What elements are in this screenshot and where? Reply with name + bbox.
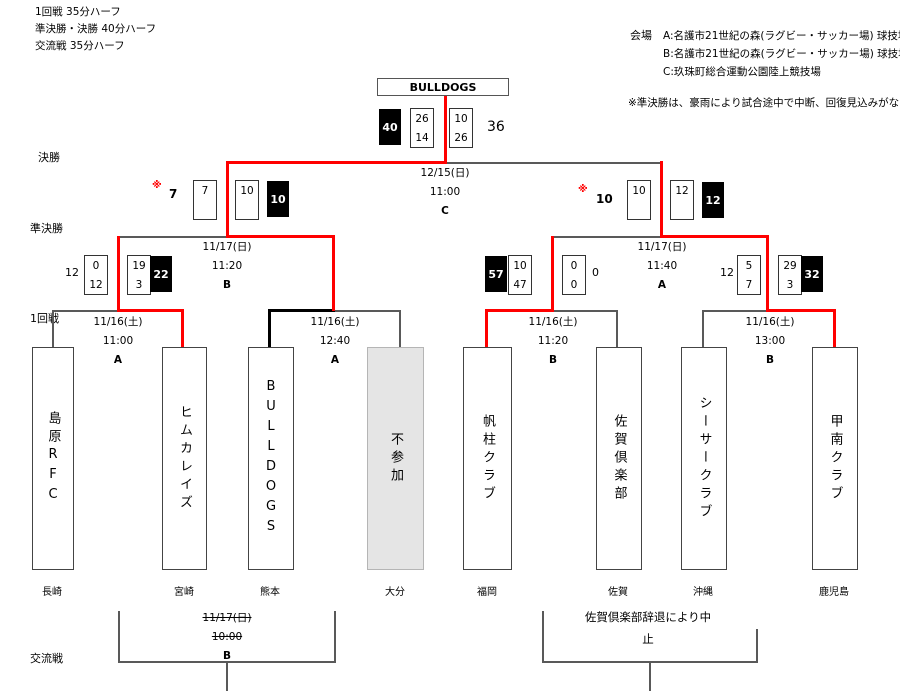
- m3-loser-halves-box: 0 0: [562, 255, 586, 295]
- venue-a: A:名護市21世紀の森(ラグビー・サッカー場) 球技場: [663, 27, 900, 45]
- team-name: BULLDOGS: [265, 379, 278, 539]
- m4-winner-half2: 3: [779, 275, 801, 294]
- m4-venue: B: [725, 351, 815, 370]
- m1-loser-total: 12: [65, 266, 79, 279]
- exchange-left-bracket-left-vertical: [118, 611, 120, 663]
- exchange-left-date: 11/17(日): [182, 609, 272, 628]
- m3-venue: B: [508, 351, 598, 370]
- m4-schedule: 11/16(土) 13:00 B: [725, 313, 815, 370]
- team-name: 甲南クラブ: [829, 414, 842, 504]
- sfR-winner-half1: 12: [671, 181, 693, 200]
- m4-loser-halves-box: 5 7: [737, 255, 761, 295]
- sfL-rain-mark: ※: [152, 180, 162, 191]
- match-duration-rules: 1回戦 35分ハーフ 準決勝・決勝 40分ハーフ 交流戦 35分ハーフ: [35, 4, 156, 55]
- sfR-venue: A: [617, 276, 707, 295]
- m4-date: 11/16(土): [725, 313, 815, 332]
- m3-winner-halves-box: 10 47: [508, 255, 532, 295]
- sfL-loser-total: 7: [169, 187, 177, 201]
- bracket-line-m3-horizontal: [553, 310, 618, 312]
- final-venue: C: [400, 202, 490, 221]
- bracket-line-m1-left-vertical: [52, 310, 54, 347]
- sfL-loser-half1: 7: [194, 181, 216, 200]
- m1-time: 11:00: [73, 332, 163, 351]
- pref-oita: 大分: [360, 583, 430, 598]
- m3-loser-total: 0: [592, 266, 599, 279]
- exchange-right-bracket-stub: [649, 662, 651, 691]
- m1-loser-half1: 0: [85, 256, 107, 275]
- m4-winner-half1: 29: [779, 256, 801, 275]
- bracket-line-m2-horizontal: [334, 310, 401, 312]
- m1-schedule: 11/16(土) 11:00 A: [73, 313, 163, 370]
- sfL-winner-half2: [236, 200, 258, 219]
- exchange-left-bracket-right-vertical: [334, 611, 336, 663]
- rule-first-round: 1回戦 35分ハーフ: [35, 4, 156, 21]
- m3-winner-total-box: 57: [485, 256, 507, 292]
- walkover-path-m2-horizontal: [268, 309, 335, 312]
- winner-path-m4-to-sfR: [766, 235, 769, 311]
- exchange-left-time: 10:00: [182, 628, 272, 647]
- exchange-right-bracket-right-vertical: [756, 629, 758, 663]
- winner-path-m4-horizontal: [766, 309, 836, 312]
- sfR-loser-halves-box: 10: [627, 180, 651, 220]
- team-box-hobashira-club: 帆柱クラブ: [463, 347, 512, 570]
- sfR-winner-halves-box: 12: [670, 180, 694, 220]
- sfL-loser-halves-box: 7: [193, 180, 217, 220]
- rule-semifinal-final: 準決勝・決勝 40分ハーフ: [35, 21, 156, 38]
- m1-winner-total-box: 22: [150, 256, 172, 292]
- final-loser-total: 36: [487, 119, 505, 135]
- sfL-schedule: 11/17(日) 11:20 B: [182, 238, 272, 295]
- team-name: ヒムカレイズ: [178, 405, 191, 513]
- final-winner-total-box: 40: [379, 109, 401, 145]
- exchange-left-bracket-stub: [226, 662, 228, 691]
- exchange-right-cancel-note: 佐賀倶楽部辞退により中 止: [543, 606, 753, 650]
- cancel-note-line2: 止: [543, 628, 753, 650]
- sfR-schedule: 11/17(日) 11:40 A: [617, 238, 707, 295]
- sfR-winner-total-box: 12: [702, 182, 724, 218]
- bracket-line-m4-horizontal: [702, 310, 768, 312]
- bracket-line-m1-horizontal: [52, 310, 118, 312]
- round-label-semifinal: 準決勝: [30, 220, 63, 236]
- sfL-date: 11/17(日): [182, 238, 272, 257]
- team-box-shimabara-rfc: 島原RFC: [32, 347, 74, 570]
- exchange-left-schedule: 11/17(日) 10:00 B: [182, 609, 272, 666]
- m4-loser-total: 12: [720, 266, 734, 279]
- final-schedule: 12/15(日) 11:00 C: [400, 164, 490, 221]
- m3-schedule: 11/16(土) 11:20 B: [508, 313, 598, 370]
- final-winner-halves-box: 26 14: [410, 108, 434, 148]
- m4-loser-half2: 7: [738, 275, 760, 294]
- team-name: 島原RFC: [47, 411, 60, 507]
- semifinal-rain-note: ※準決勝は、豪雨により試合途中で中断、回復見込みがないため大会: [628, 95, 900, 110]
- team-box-absent: 不参加: [367, 347, 424, 570]
- pref-kumamoto: 熊本: [235, 583, 305, 598]
- team-box-seasar-club: シーサークラブ: [681, 347, 727, 570]
- team-box-himuka-raise: ヒムカレイズ: [162, 347, 207, 570]
- round-label-final: 決勝: [38, 149, 60, 165]
- m3-date: 11/16(土): [508, 313, 598, 332]
- m1-venue: A: [73, 351, 163, 370]
- m4-time: 13:00: [725, 332, 815, 351]
- team-name: 佐賀倶楽部: [613, 414, 626, 504]
- final-winner-half1: 26: [411, 109, 433, 128]
- sfR-time: 11:40: [617, 257, 707, 276]
- winner-path-sfR-to-final: [660, 161, 663, 238]
- final-winner-half2: 14: [411, 128, 433, 147]
- team-name: 不参加: [389, 432, 402, 486]
- venue-c: C:玖珠町総合運動公園陸上競技場: [663, 63, 900, 81]
- winner-path-m1-horizontal: [117, 309, 184, 312]
- sfR-rain-mark: ※: [578, 184, 588, 195]
- round-label-first: 1回戦: [30, 310, 59, 326]
- final-time: 11:00: [400, 183, 490, 202]
- sfL-winner-total-box: 10: [267, 181, 289, 217]
- cancel-note-line1: 佐賀倶楽部辞退により中: [543, 606, 753, 628]
- sfR-date: 11/17(日): [617, 238, 707, 257]
- winner-path-m2-to-sfL: [332, 235, 335, 311]
- m3-loser-half1: 0: [563, 256, 585, 275]
- final-loser-half1: 10: [450, 109, 472, 128]
- m4-winner-total-box: 32: [801, 256, 823, 292]
- m2-date: 11/16(土): [290, 313, 380, 332]
- winner-path-champion-vertical: [444, 94, 447, 163]
- venues-label: 会場: [630, 27, 652, 43]
- winner-path-m4-right-vertical: [833, 309, 836, 347]
- bracket-line-m3-right-vertical: [616, 310, 618, 347]
- m1-loser-half2: 12: [85, 275, 107, 294]
- venue-b: B:名護市21世紀の森(ラグビー・サッカー場) 球技場: [663, 45, 900, 63]
- team-name: シーサークラブ: [698, 396, 711, 522]
- rule-exchange: 交流戦 35分ハーフ: [35, 38, 156, 55]
- m1-winner-halves-box: 19 3: [127, 255, 151, 295]
- sfR-winner-half2: [671, 200, 693, 219]
- m1-winner-half2: 3: [128, 275, 150, 294]
- team-box-saga-club: 佐賀倶楽部: [596, 347, 642, 570]
- winner-path-m1-to-sfL: [117, 236, 120, 311]
- m1-winner-half1: 19: [128, 256, 150, 275]
- exchange-left-venue: B: [182, 647, 272, 666]
- pref-fukuoka: 福岡: [452, 583, 522, 598]
- m3-winner-half1: 10: [509, 256, 531, 275]
- final-loser-halves-box: 10 26: [449, 108, 473, 148]
- m4-loser-half1: 5: [738, 256, 760, 275]
- team-box-konan-club: 甲南クラブ: [812, 347, 858, 570]
- m1-loser-halves-box: 0 12: [84, 255, 108, 295]
- m3-winner-half2: 47: [509, 275, 531, 294]
- final-date: 12/15(日): [400, 164, 490, 183]
- final-loser-half2: 26: [450, 128, 472, 147]
- pref-saga: 佐賀: [583, 583, 653, 598]
- sfR-loser-half2: [628, 200, 650, 219]
- pref-kagoshima: 鹿児島: [799, 583, 869, 598]
- tournament-bracket: 1回戦 35分ハーフ 準決勝・決勝 40分ハーフ 交流戦 35分ハーフ 会場 A…: [0, 0, 900, 691]
- sfL-winner-half1: 10: [236, 181, 258, 200]
- pref-miyazaki: 宮崎: [149, 583, 219, 598]
- winner-path-m3-horizontal: [485, 309, 554, 312]
- m3-time: 11:20: [508, 332, 598, 351]
- winner-path-m3-to-sfR: [551, 236, 554, 311]
- sfL-time: 11:20: [182, 257, 272, 276]
- winner-path-m3-left-vertical: [485, 309, 488, 347]
- winner-path-m1-right-vertical: [181, 309, 184, 347]
- sfL-winner-halves-box: 10: [235, 180, 259, 220]
- walkover-path-m2-left-vertical: [268, 309, 271, 347]
- bracket-line-m4-left-vertical: [702, 310, 704, 347]
- bracket-line-m2-right-vertical: [399, 310, 401, 347]
- venue-list: A:名護市21世紀の森(ラグビー・サッカー場) 球技場 B:名護市21世紀の森(…: [663, 27, 900, 81]
- round-label-exchange: 交流戦: [30, 650, 63, 666]
- m3-loser-half2: 0: [563, 275, 585, 294]
- champion-box: BULLDOGS: [377, 78, 509, 96]
- sfL-venue: B: [182, 276, 272, 295]
- winner-path-sfL-to-final: [226, 161, 229, 237]
- m1-date: 11/16(土): [73, 313, 163, 332]
- sfR-loser-half1: 10: [628, 181, 650, 200]
- team-name: 帆柱クラブ: [481, 414, 494, 504]
- sfR-loser-total: 10: [596, 192, 613, 206]
- team-box-bulldogs: BULLDOGS: [248, 347, 294, 570]
- sfL-loser-half2: [194, 200, 216, 219]
- pref-nagasaki: 長崎: [17, 583, 87, 598]
- m4-winner-halves-box: 29 3: [778, 255, 802, 295]
- pref-okinawa: 沖縄: [668, 583, 738, 598]
